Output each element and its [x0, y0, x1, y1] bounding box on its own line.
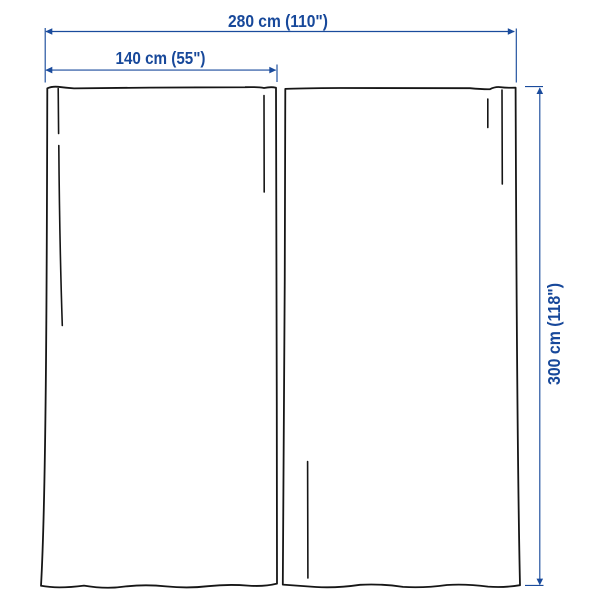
svg-text:140 cm (55"): 140 cm (55")	[116, 48, 206, 68]
svg-text:300 cm (118"): 300 cm (118")	[544, 283, 564, 385]
svg-text:280 cm (110"): 280 cm (110")	[228, 11, 328, 31]
